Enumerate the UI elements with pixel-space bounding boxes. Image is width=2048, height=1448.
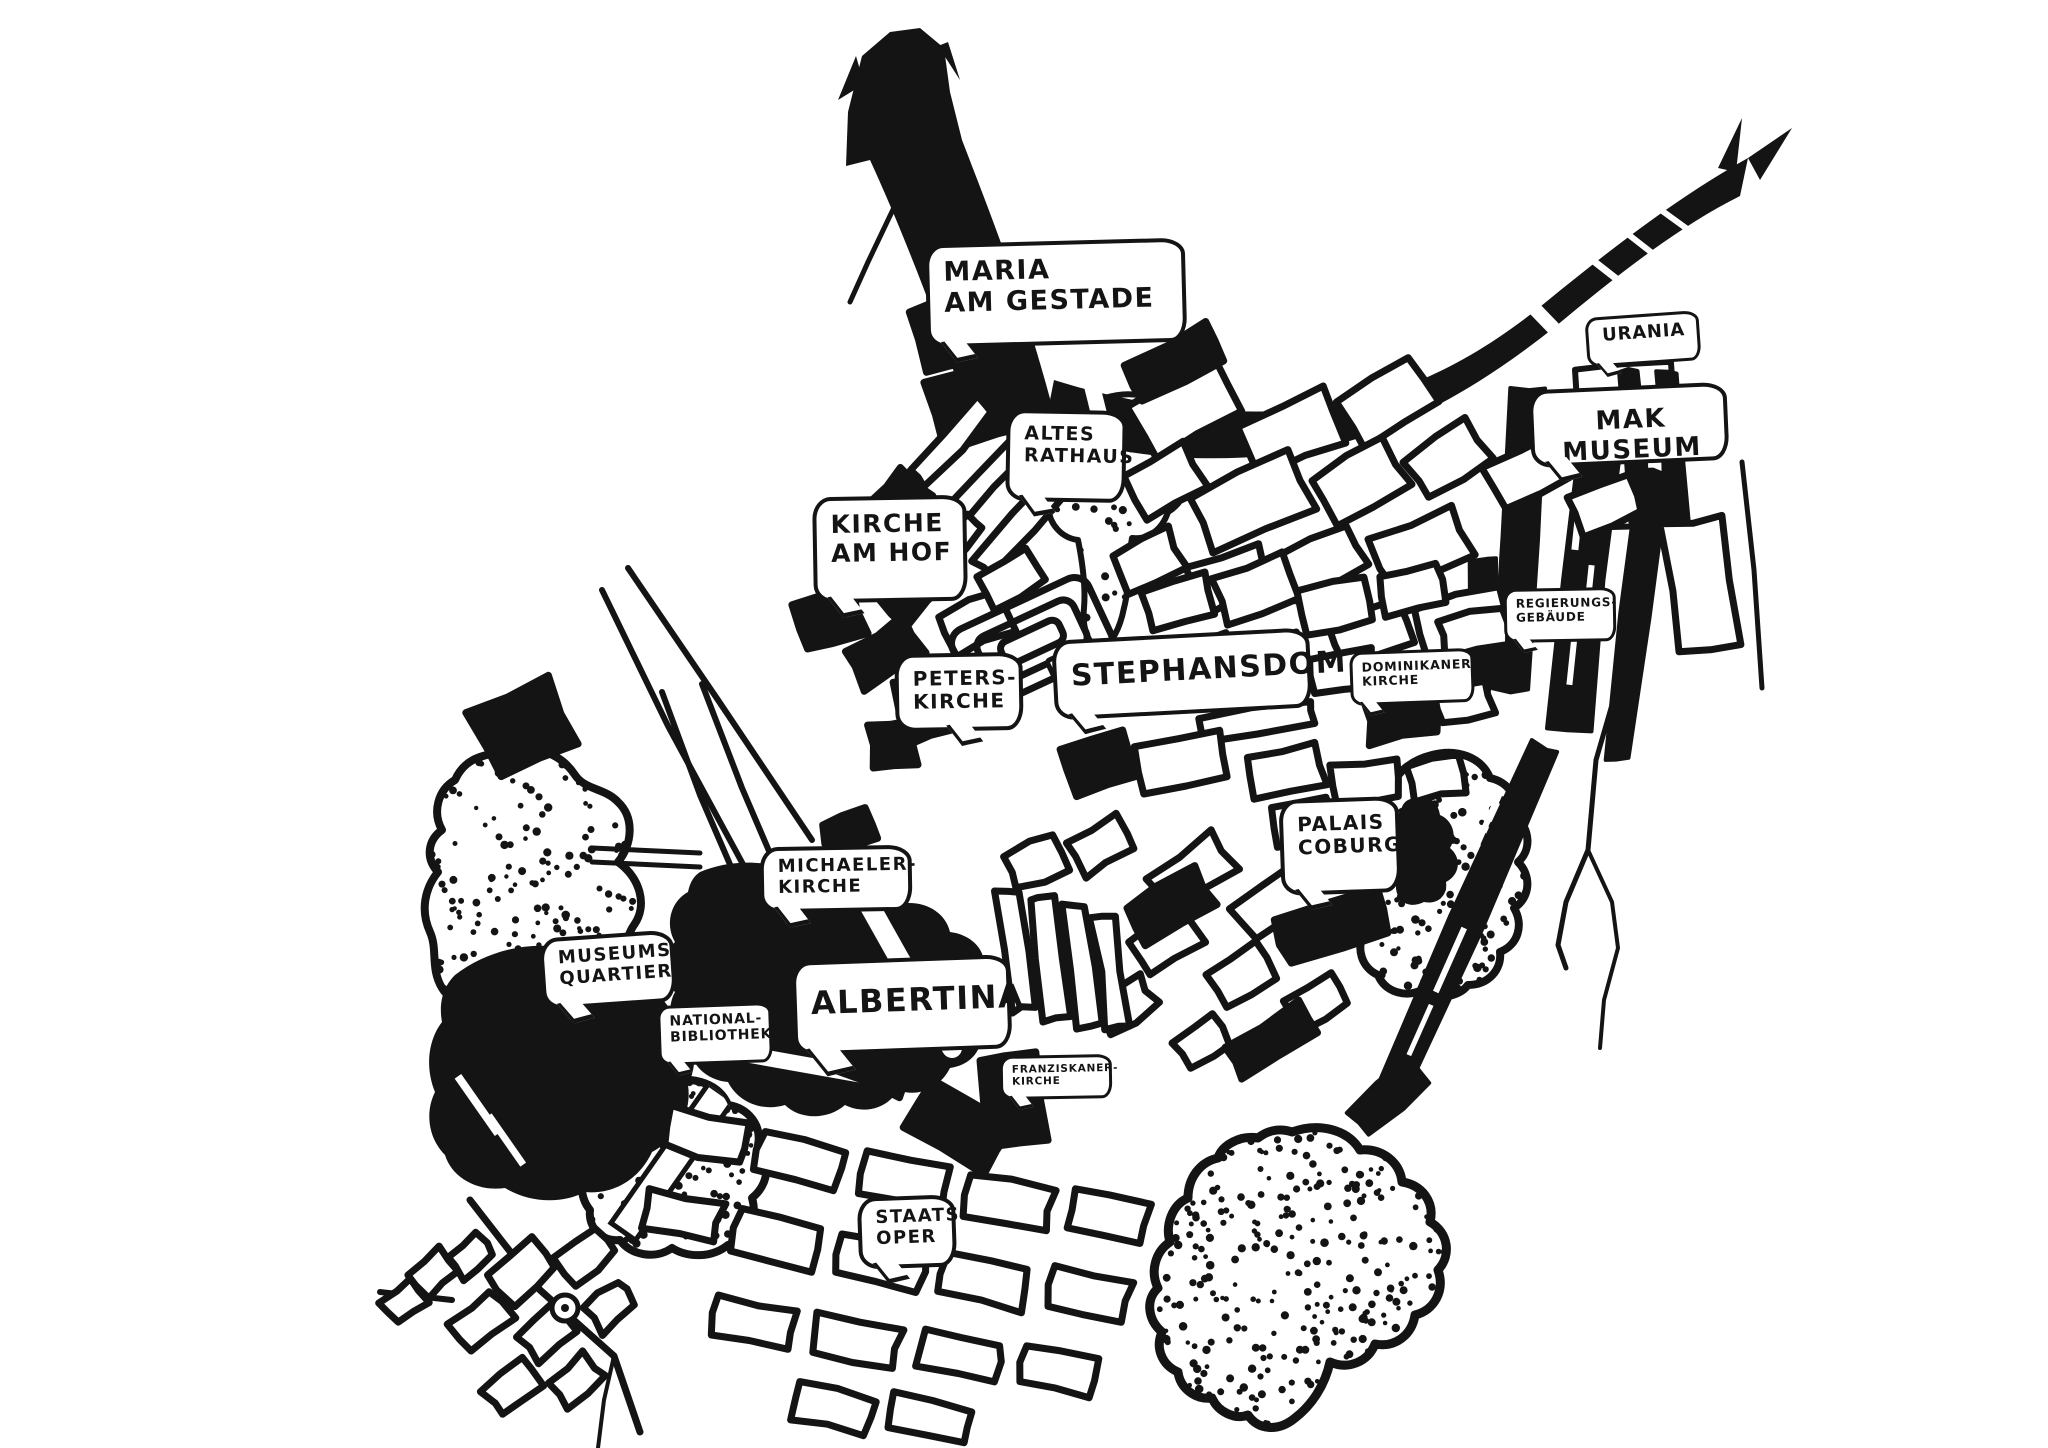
label-franziskanerkirche: FRANZISKANER- KIRCHE [1000, 1054, 1113, 1100]
label-regierungsgebaeude: REGIERUNGS- GEBÄUDE [1504, 587, 1617, 643]
label-urania: URANIA [1584, 310, 1701, 368]
label-text: STEPHANSDOM [1070, 648, 1297, 694]
label-text: KIRCHE [778, 875, 898, 898]
label-text: URANIA [1597, 320, 1690, 347]
label-text: OPER [876, 1226, 943, 1249]
label-nationalbibliothek: NATIONAL- BIBLIOTHEK [657, 1002, 773, 1066]
label-michaelerkirche: MICHAELER- KIRCHE [759, 845, 912, 914]
label-museumsquartier: MUSEUMS- QUARTIER [539, 929, 678, 1010]
vienna-hand-drawn-map: MARIA AM GESTADE URANIA MAK MUSEUM ALTES… [0, 0, 2048, 1448]
label-text: KIRCHE [1012, 1075, 1102, 1089]
label-albertina: ALBERTINA [791, 954, 1012, 1056]
label-palais-coburg: PALAIS COBURG [1278, 796, 1401, 896]
label-peterskirche: PETERS- KIRCHE [894, 652, 1023, 732]
label-dominikanerkirche: DOMINIKANER- KIRCHE [1349, 648, 1475, 706]
map-drawing [0, 0, 2048, 1448]
label-maria-am-gestade: MARIA AM GESTADE [925, 238, 1188, 349]
label-text: MICHAELER- [778, 855, 898, 878]
label-text: KIRCHE [1362, 671, 1464, 689]
label-stephansdom: STEPHANSDOM [1051, 627, 1313, 720]
label-kirche-am-hof: KIRCHE AM HOF [812, 495, 968, 604]
label-text: AM GESTADE [944, 283, 1173, 320]
label-staatsoper: STAATS- OPER [857, 1194, 957, 1269]
label-text: GEBÄUDE [1516, 610, 1606, 625]
label-text: AM HOF [831, 537, 953, 568]
label-mak-museum: MAK MUSEUM [1528, 382, 1729, 469]
label-text: COBURG [1298, 833, 1387, 859]
label-text: KIRCHE [913, 689, 1009, 713]
label-text: RATHAUS [1024, 445, 1112, 468]
label-text: PETERS- [913, 666, 1009, 690]
label-text: BIBLIOTHEK [670, 1027, 763, 1046]
label-text: ALTES [1024, 423, 1112, 446]
label-text: KIRCHE [830, 509, 952, 540]
label-text: ALBERTINA [810, 979, 997, 1022]
label-text: MAK MUSEUM [1547, 402, 1715, 468]
label-altes-rathaus: ALTES RATHAUS [1005, 409, 1127, 503]
